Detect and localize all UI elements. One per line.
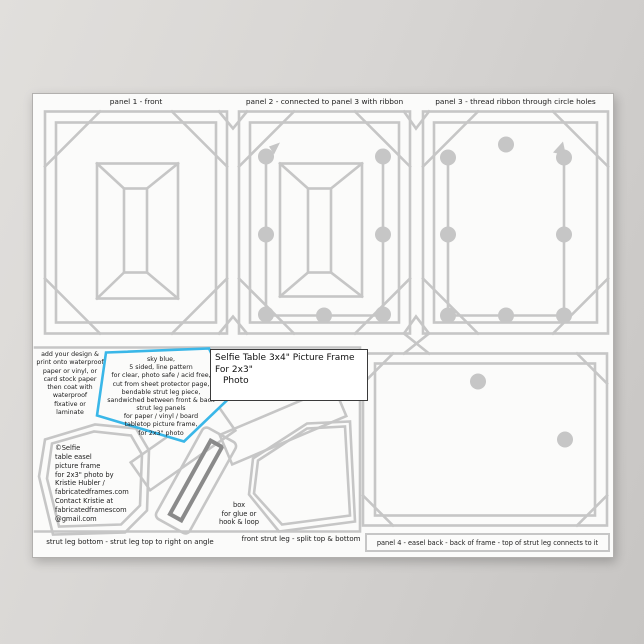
panel1-outline: [45, 112, 227, 334]
glue-box-note: box for glue or hook & loop: [201, 501, 277, 527]
panel1-frame: [97, 164, 178, 299]
panel3-outline: [423, 112, 608, 334]
title-box: Selfie Table 3x4" Picture Frame For 2x3"…: [210, 349, 368, 401]
panel4-holes: [470, 374, 573, 448]
panel3-label: panel 3 - thread ribbon through circle h…: [423, 97, 608, 106]
panel2-outline: [239, 112, 410, 334]
panel2-frame: [280, 164, 362, 297]
title-line-3: Photo: [215, 376, 363, 388]
front-strut-leg-label: front strut leg - split top & bottom: [236, 535, 366, 543]
ribbon-arrow-icon: [553, 142, 566, 156]
pentagon-note: sky blue, 5 sided, line pattern for clea…: [99, 356, 223, 438]
strut-leg-bottom-label: strut leg bottom - strut leg top to righ…: [35, 538, 225, 546]
panel3-ribbon-holes: [440, 137, 572, 324]
panel2-label: panel 2 - connected to panel 3 with ribb…: [239, 97, 410, 106]
copyright-note: ©Selfie table easel picture frame for 2x…: [55, 444, 155, 524]
title-line-2: For 2x3": [215, 365, 363, 377]
poster: panel 1 - front panel 2 - connected to p…: [32, 93, 614, 558]
title-line-1: Selfie Table 3x4" Picture Frame: [215, 353, 363, 365]
panel4-label: panel 4 - easel back - back of frame - t…: [365, 533, 610, 552]
add-design-note: add your design & print onto waterproof …: [34, 351, 106, 417]
page-background: panel 1 - front panel 2 - connected to p…: [0, 0, 644, 644]
panel1-label: panel 1 - front: [45, 97, 227, 106]
